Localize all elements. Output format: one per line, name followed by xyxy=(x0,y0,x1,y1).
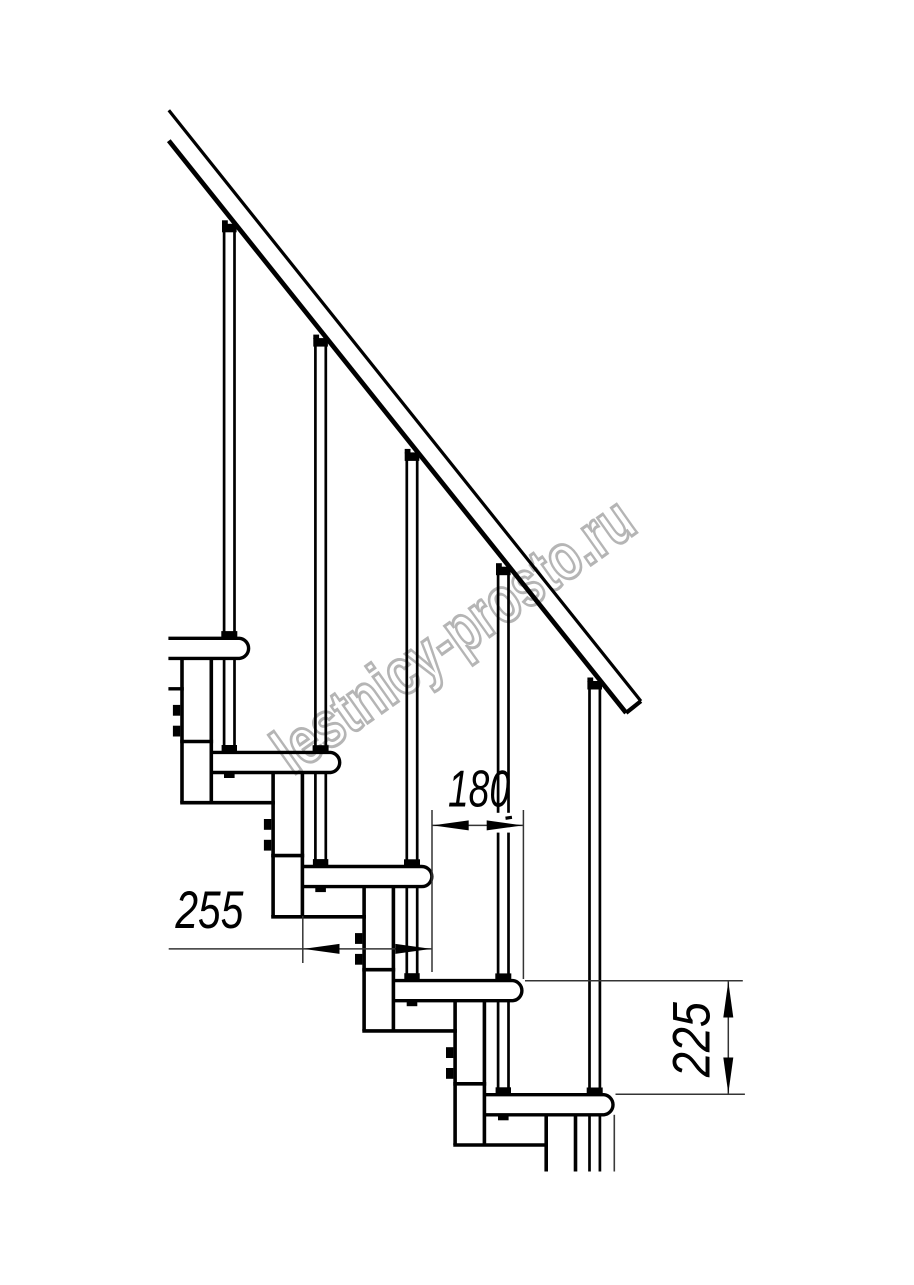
svg-text:225: 225 xyxy=(663,1002,722,1078)
svg-text:180: 180 xyxy=(448,760,510,818)
svg-text:255: 255 xyxy=(175,881,244,940)
